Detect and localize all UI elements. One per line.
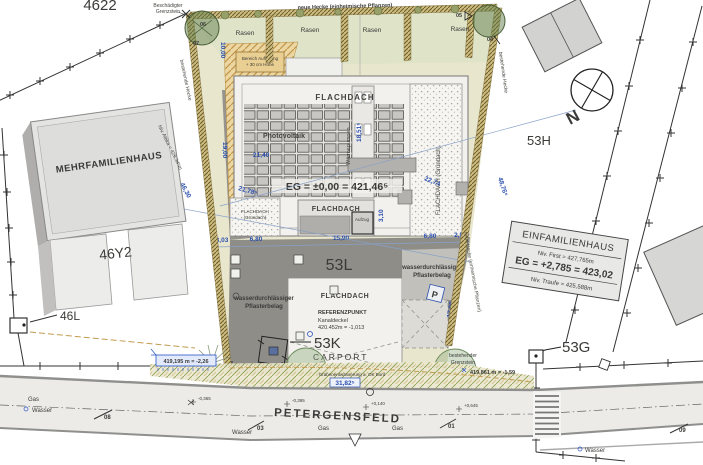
pflaster-right-1: wasserdurchlässiger [401, 265, 462, 271]
dim-21-40: 21,40 [253, 152, 270, 159]
label-rasen-4: Rasen [451, 26, 470, 33]
fill-note-line2: + 30 cm Höhe [246, 62, 275, 67]
site-plan: Bereich Auffüllung + 30 cm Höhe FLACHDAC… [0, 0, 703, 465]
north-label: N [563, 106, 583, 129]
parcel-53h: 53H [527, 133, 551, 148]
label-photovoltaik: Photovoltaik [263, 133, 305, 140]
gas-2: Gas [318, 426, 329, 432]
label-flachdach-bottom: FLACHDACH [321, 293, 369, 300]
referenzpunkt-title: REFERENZPUNKT [318, 310, 367, 316]
parcel-53g: 53G [562, 339, 590, 356]
pflaster-left-2: Pflasterbelag [245, 304, 283, 310]
elev-3: +0,140 [371, 401, 385, 406]
tree-07: 07 [193, 41, 199, 47]
label-bestehende-hecke-right: bestehende Hecke [497, 51, 509, 93]
north-arrow: N [563, 69, 613, 129]
dim-10-00: 10,00 [219, 42, 226, 59]
wasser-2: Wasser [232, 430, 252, 436]
neighbour-building-bottom [644, 222, 703, 326]
benchmark-right: 419,861 m = -1,59 [470, 370, 515, 376]
label-rasen-1: Rasen [236, 30, 255, 37]
site-plan-drawing: Bereich Auffüllung + 30 cm Höhe FLACHDAC… [0, 0, 703, 465]
wasser-3: Wasser [585, 448, 605, 454]
elev-2: -0,395 [292, 398, 305, 403]
tree-05: 05 [456, 13, 462, 19]
label-eg-main: EG = ±0,00 = 421,46⁵ [286, 181, 388, 193]
pedestrian-crossing [533, 391, 561, 439]
label-waermepumpen: Wärmepumpen [346, 127, 352, 165]
elev-4: +0,645 [464, 403, 478, 408]
grenzstein-53g: 53G [529, 339, 590, 363]
parcel-53l: 53L [326, 257, 353, 274]
parcel-53k: 53K [314, 335, 341, 352]
benchmark-left: 419,195 m = -2,26 [163, 359, 208, 365]
dim-6-80-b: 6,80 [424, 233, 437, 240]
tree-06: 06 [200, 22, 206, 28]
label-rasen-3: Rasen [363, 27, 382, 34]
dim-48-76: 48,76⁵ [496, 176, 509, 197]
best-grenzstein-2: Grenzstein [451, 360, 475, 366]
label-gruendach-small-2: (Gründach) [244, 215, 267, 220]
gas-1: Gas [28, 397, 39, 403]
dim-31-82: 31,82⁵ [335, 380, 354, 387]
label-neue-hecke-right: neue Hecke (einheimische Pflanzen) [462, 231, 482, 313]
dim-6-80-a: 6,80 [250, 236, 263, 243]
mehrfamilienhaus-block: MEHRFAMILIENHAUS 46Y2 Niv. Attika = 429,… [21, 102, 188, 316]
label-gruendach-small-1: FLACHDACH [241, 209, 269, 214]
dim-15-90: 15,90 [333, 235, 350, 242]
label-aufzug: Aufzug [355, 217, 370, 222]
dim-18-51: 18,51⁵ [356, 123, 363, 142]
marker-08: 08 [104, 415, 111, 421]
tree-04: 04 [487, 37, 494, 43]
label-rasen-2: Rasen [301, 27, 320, 34]
besch-grenzstein-2: Grenzstein [156, 9, 180, 15]
dim-3-10: 3,10 [378, 209, 385, 222]
marker-03: 03 [257, 426, 264, 432]
parking-sign: P [427, 284, 445, 302]
pflaster-right-2: Pflasterbelag [413, 273, 451, 279]
elevator-box [352, 212, 373, 234]
parcel-46l: 46L [60, 309, 80, 323]
street: PETERGENSFELD 08 03 01 09 -0,365 -0,395 … [0, 376, 703, 454]
einfamilienhaus-box: EINFAMILIENHAUS Niv. First = 427,765m EG… [502, 221, 628, 301]
dim-19-00: 19,00 [221, 142, 228, 159]
wasser-1: Wasser [32, 408, 52, 414]
label-flachdach-main: FLACHDACH [315, 93, 374, 102]
elev-1: -0,365 [198, 396, 211, 401]
parcel-46y2: 46Y2 [98, 243, 132, 262]
label-flachdach-center: FLACHDACH [312, 206, 360, 213]
pflaster-left-1: wasserdurchlässiger [233, 296, 294, 302]
neighbour-building-top [522, 0, 602, 72]
label-graben: Grabenentwässerung a. OK Bord [319, 372, 386, 377]
marker-09: 09 [679, 428, 686, 434]
gas-3: Gas [392, 426, 403, 432]
best-grenzstein-1: bestehender [449, 353, 477, 359]
referenzpunkt-kanaldeckel: Kanaldeckel [318, 318, 348, 324]
marker-01: 01 [448, 424, 455, 430]
parcel-4622: 4622 [83, 0, 116, 14]
label-bestehende-hecke-left: bestehende Hecke [178, 59, 193, 101]
referenzpunkt-value: 420.452m = -1,013 [318, 325, 364, 331]
